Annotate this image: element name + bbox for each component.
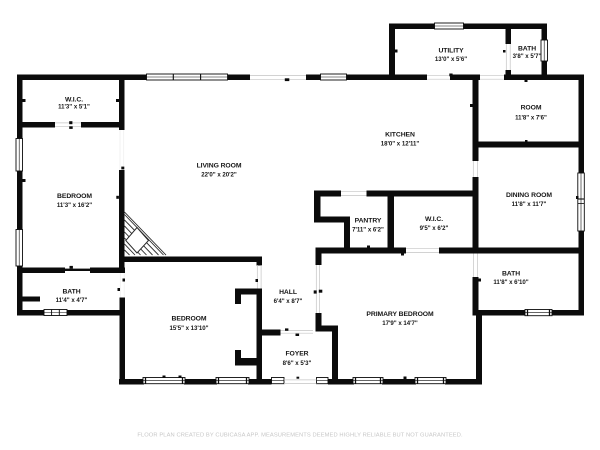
svg-text:18'0" x 12'11": 18'0" x 12'11" [381, 141, 420, 148]
svg-text:7'11" x 6'2": 7'11" x 6'2" [352, 227, 384, 234]
svg-text:KITCHEN: KITCHEN [385, 132, 415, 139]
svg-text:11'3" x 16'2": 11'3" x 16'2" [57, 202, 92, 209]
svg-text:PRIMARY BEDROOM: PRIMARY BEDROOM [366, 311, 434, 318]
svg-text:11'8" x 7'6": 11'8" x 7'6" [515, 114, 547, 121]
svg-text:17'9" x 14'7": 17'9" x 14'7" [382, 320, 418, 327]
svg-text:13'0" x 5'6": 13'0" x 5'6" [435, 56, 467, 63]
svg-text:11'8" x 6'10": 11'8" x 6'10" [493, 279, 528, 286]
svg-text:BATH: BATH [62, 289, 80, 296]
svg-text:ROOM: ROOM [521, 105, 542, 112]
svg-text:HALL: HALL [279, 289, 297, 296]
svg-text:W.I.C.: W.I.C. [425, 216, 443, 223]
svg-text:11'8" x 11'7": 11'8" x 11'7" [512, 201, 547, 208]
svg-text:3'8" x 5'7": 3'8" x 5'7" [513, 53, 542, 60]
svg-text:W.I.C.: W.I.C. [65, 97, 83, 104]
svg-text:11'4" x 4'7": 11'4" x 4'7" [56, 297, 88, 304]
svg-text:11'3" x 5'1": 11'3" x 5'1" [58, 104, 90, 111]
svg-text:BATH: BATH [518, 46, 536, 53]
svg-text:BEDROOM: BEDROOM [57, 193, 92, 200]
svg-text:15'5" x 13'10": 15'5" x 13'10" [170, 325, 209, 332]
svg-text:PANTRY: PANTRY [355, 217, 382, 224]
svg-text:FLOOR PLAN CREATED BY CUBICASA: FLOOR PLAN CREATED BY CUBICASA APP. MEAS… [137, 432, 463, 438]
svg-text:6'4" x 8'7": 6'4" x 8'7" [274, 298, 303, 305]
svg-text:DINING ROOM: DINING ROOM [506, 192, 552, 199]
svg-text:LIVING ROOM: LIVING ROOM [197, 163, 242, 170]
svg-text:22'0" x 20'2": 22'0" x 20'2" [201, 172, 237, 179]
svg-text:8'6" x 5'3": 8'6" x 5'3" [283, 360, 312, 367]
svg-text:BEDROOM: BEDROOM [172, 316, 207, 323]
svg-text:9'5" x 6'2": 9'5" x 6'2" [420, 225, 449, 232]
svg-text:FOYER: FOYER [285, 351, 308, 358]
svg-text:UTILITY: UTILITY [438, 48, 464, 55]
svg-text:BATH: BATH [502, 271, 520, 278]
